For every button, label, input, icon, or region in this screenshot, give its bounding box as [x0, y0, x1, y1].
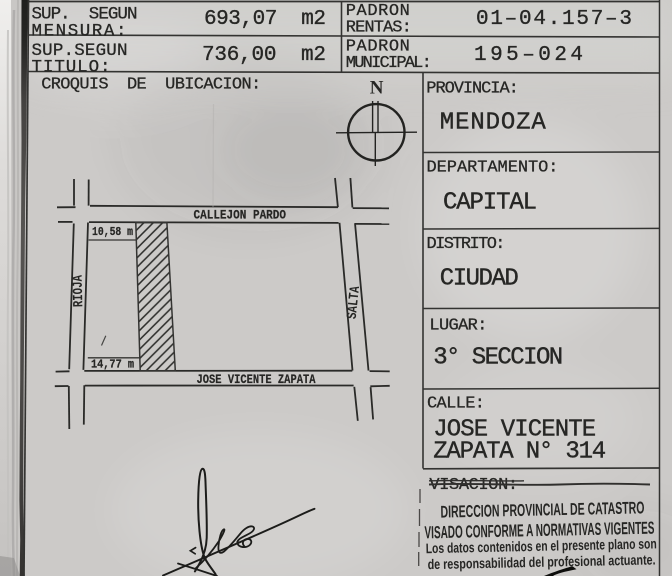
svg-text:ZAPATA N° 314: ZAPATA N° 314: [433, 439, 606, 466]
svg-text:RIOJA: RIOJA: [71, 274, 88, 307]
svg-text:736,00 m2: 736,00 m2: [202, 44, 326, 67]
svg-text:693,07 m2: 693,07 m2: [204, 8, 326, 31]
svg-text:RENTAS:: RENTAS:: [346, 19, 412, 38]
svg-text:TITULO:: TITULO:: [32, 57, 111, 77]
svg-text:CAPITAL: CAPITAL: [443, 189, 537, 216]
svg-text:10,58 m: 10,58 m: [92, 225, 133, 239]
svg-text:PROVINCIA:: PROVINCIA:: [426, 79, 519, 98]
svg-text:JOSE VICENTE ZAPATA: JOSE VICENTE ZAPATA: [197, 373, 316, 387]
svg-text:LUGAR:: LUGAR:: [429, 317, 487, 336]
svg-text:14,77 m: 14,77 m: [91, 358, 134, 372]
svg-text:3° SECCION: 3° SECCION: [433, 345, 563, 372]
svg-text:N: N: [370, 77, 384, 98]
svg-text:CROQUIS DE UBICACION:: CROQUIS DE UBICACION:: [41, 75, 261, 94]
svg-text:CIUDAD: CIUDAD: [440, 266, 519, 293]
svg-text:MENSURA:: MENSURA:: [32, 22, 127, 42]
svg-text:DISTRITO:: DISTRITO:: [427, 235, 506, 254]
svg-text:DEPARTAMENTO:: DEPARTAMENTO:: [427, 158, 559, 177]
svg-text:CALLEJON PARDO: CALLEJON PARDO: [194, 208, 287, 223]
svg-text:01–04.157–3: 01–04.157–3: [476, 8, 632, 31]
svg-text:CALLE:: CALLE:: [427, 395, 485, 414]
svg-text:195–024: 195–024: [474, 44, 583, 67]
svg-text:MUNICIPAL:: MUNICIPAL:: [346, 54, 432, 73]
svg-text:MENDOZA: MENDOZA: [440, 109, 547, 136]
